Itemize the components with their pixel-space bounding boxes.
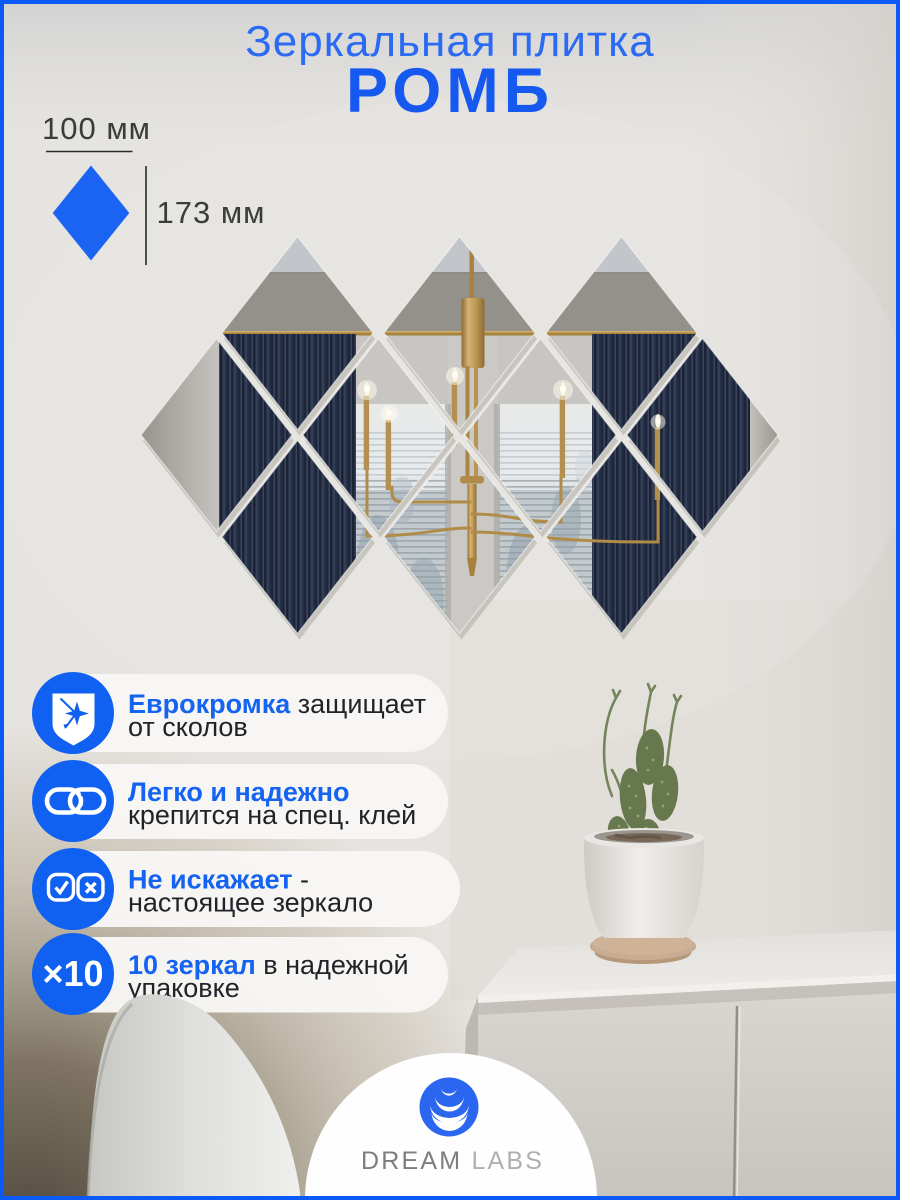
svg-text:100 мм: 100 мм [42,111,151,146]
svg-text:крепится на спец. клей: крепится на спец. клей [128,800,416,830]
svg-text:настоящее зеркало: настоящее зеркало [128,888,373,918]
svg-text:173 мм: 173 мм [157,195,266,230]
svg-text:от сколов: от сколов [128,712,248,742]
svg-text:РОМБ: РОМБ [346,56,554,126]
svg-text:×10: ×10 [42,953,103,994]
svg-text:DREAM LABS: DREAM LABS [361,1147,544,1175]
